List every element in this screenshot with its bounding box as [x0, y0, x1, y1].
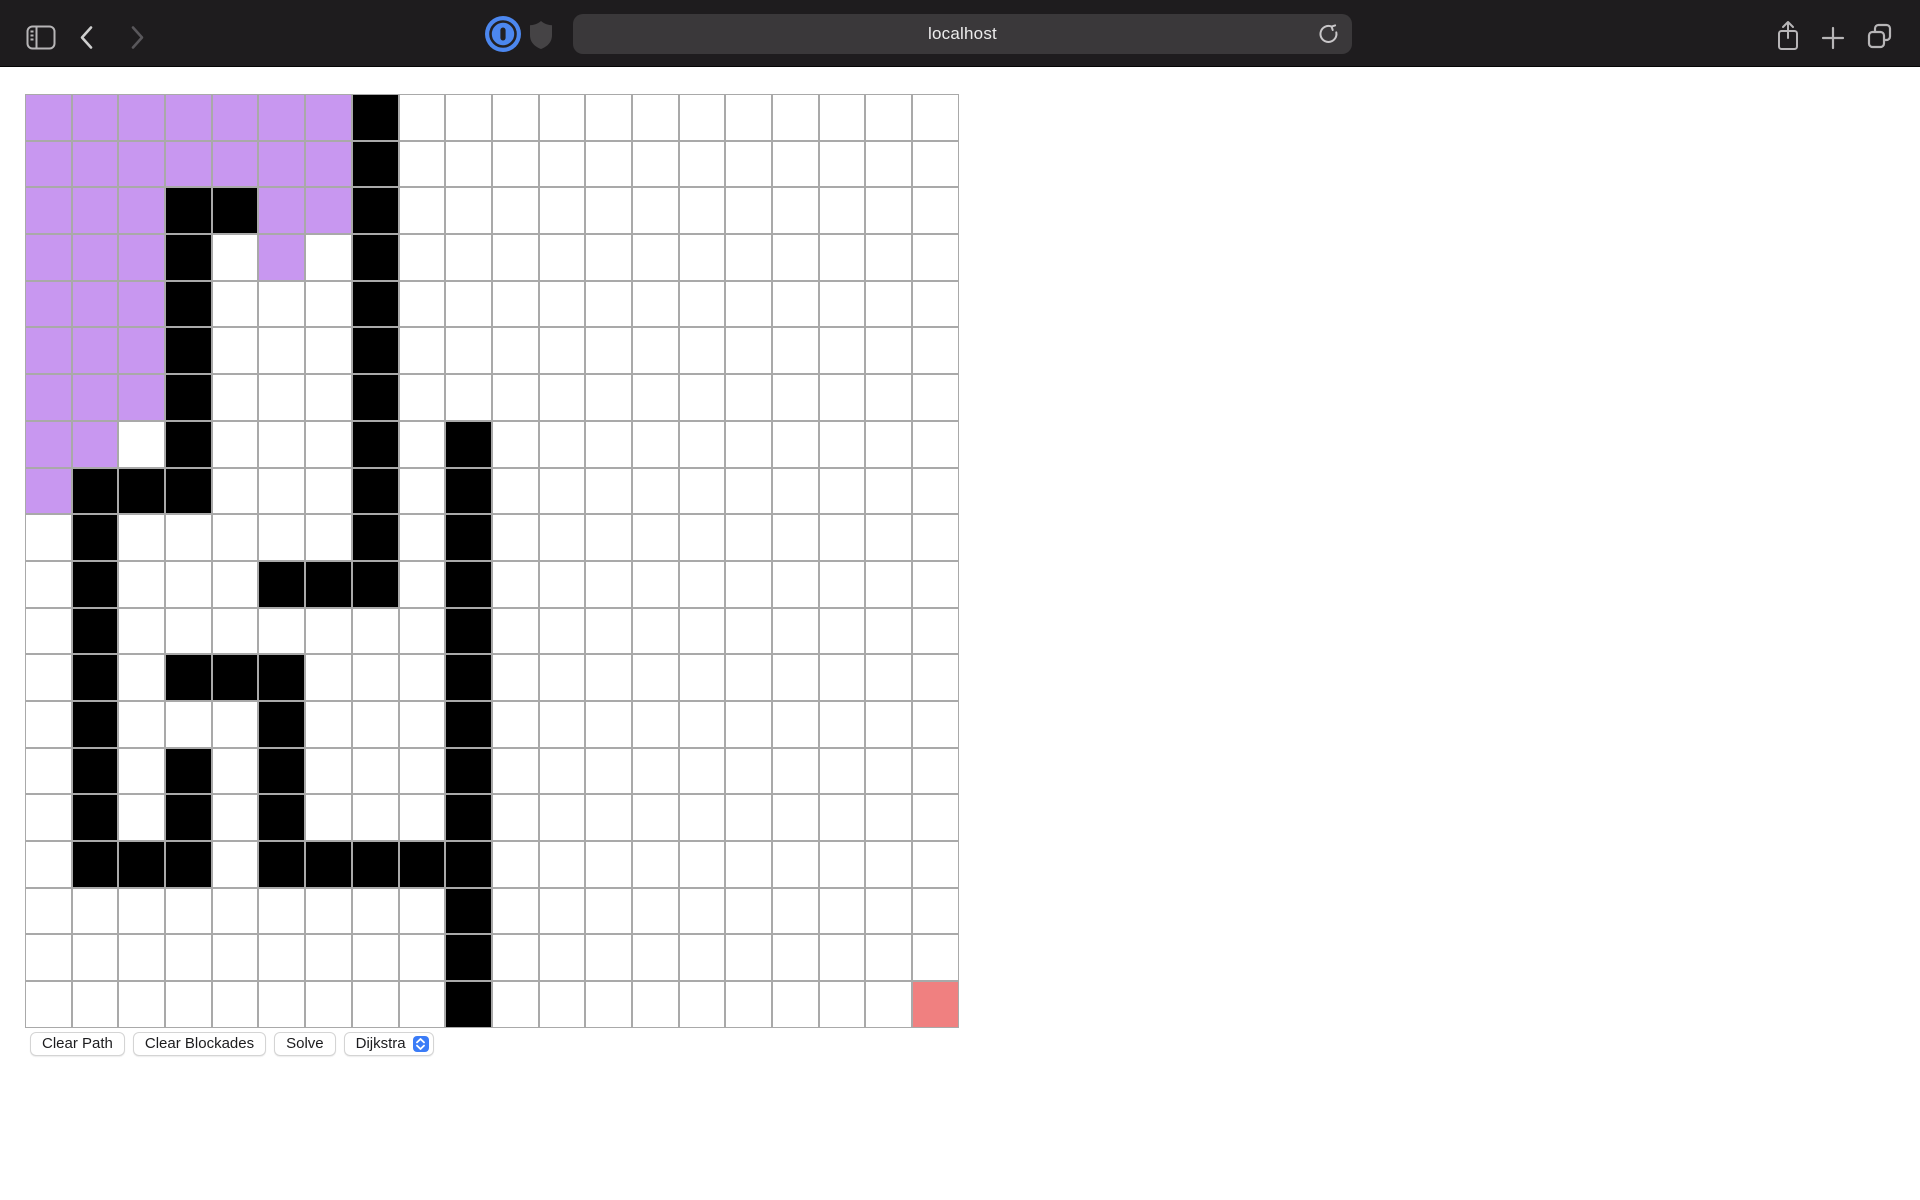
grid-cell-visited[interactable]	[258, 141, 305, 188]
grid-cell-empty[interactable]	[539, 468, 586, 515]
grid-cell-visited[interactable]	[118, 327, 165, 374]
grid-cell-empty[interactable]	[305, 468, 352, 515]
grid-cell-empty[interactable]	[258, 374, 305, 421]
grid-cell-empty[interactable]	[399, 141, 446, 188]
grid-cell-empty[interactable]	[819, 748, 866, 795]
grid-cell-empty[interactable]	[492, 234, 539, 281]
grid-cell-blockade[interactable]	[72, 841, 119, 888]
grid-cell-empty[interactable]	[399, 281, 446, 328]
grid-cell-empty[interactable]	[632, 421, 679, 468]
grid-cell-empty[interactable]	[912, 281, 959, 328]
grid-cell-visited[interactable]	[25, 374, 72, 421]
grid-cell-empty[interactable]	[399, 94, 446, 141]
grid-cell-empty[interactable]	[445, 187, 492, 234]
grid-cell-empty[interactable]	[865, 234, 912, 281]
grid-cell-empty[interactable]	[305, 654, 352, 701]
grid-cell-visited[interactable]	[25, 234, 72, 281]
grid-cell-visited[interactable]	[72, 187, 119, 234]
grid-cell-empty[interactable]	[585, 421, 632, 468]
grid-cell-empty[interactable]	[539, 514, 586, 561]
grid-cell-empty[interactable]	[865, 421, 912, 468]
grid-cell-visited[interactable]	[165, 141, 212, 188]
grid-cell-empty[interactable]	[25, 561, 72, 608]
grid-cell-empty[interactable]	[679, 281, 726, 328]
grid-cell-empty[interactable]	[352, 981, 399, 1028]
grid-cell-empty[interactable]	[445, 141, 492, 188]
grid-cell-empty[interactable]	[445, 281, 492, 328]
grid-cell-empty[interactable]	[679, 514, 726, 561]
grid-cell-empty[interactable]	[725, 794, 772, 841]
grid-cell-visited[interactable]	[72, 327, 119, 374]
grid-cell-empty[interactable]	[352, 794, 399, 841]
grid-cell-visited[interactable]	[118, 187, 165, 234]
grid-cell-empty[interactable]	[305, 794, 352, 841]
grid-cell-empty[interactable]	[352, 934, 399, 981]
grid-cell-empty[interactable]	[212, 234, 259, 281]
grid-cell-empty[interactable]	[632, 234, 679, 281]
grid-cell-empty[interactable]	[539, 234, 586, 281]
grid-cell-blockade[interactable]	[72, 748, 119, 795]
grid-cell-blockade[interactable]	[445, 934, 492, 981]
grid-cell-empty[interactable]	[632, 468, 679, 515]
clear-blockades-button[interactable]: Clear Blockades	[133, 1032, 266, 1056]
grid-cell-empty[interactable]	[772, 934, 819, 981]
grid-cell-empty[interactable]	[819, 561, 866, 608]
grid-cell-empty[interactable]	[912, 888, 959, 935]
grid-cell-empty[interactable]	[772, 608, 819, 655]
grid-cell-empty[interactable]	[912, 654, 959, 701]
grid-cell-empty[interactable]	[585, 468, 632, 515]
grid-cell-empty[interactable]	[399, 701, 446, 748]
grid-cell-empty[interactable]	[212, 841, 259, 888]
grid-cell-empty[interactable]	[305, 514, 352, 561]
grid-cell-empty[interactable]	[679, 187, 726, 234]
grid-cell-empty[interactable]	[725, 561, 772, 608]
grid-cell-empty[interactable]	[399, 561, 446, 608]
tab-overview-icon[interactable]	[1866, 23, 1898, 52]
grid-cell-empty[interactable]	[492, 654, 539, 701]
grid-cell-empty[interactable]	[305, 981, 352, 1028]
grid-cell-empty[interactable]	[492, 608, 539, 655]
grid-cell-empty[interactable]	[912, 841, 959, 888]
grid-cell-empty[interactable]	[539, 701, 586, 748]
grid-cell-empty[interactable]	[585, 327, 632, 374]
grid-cell-empty[interactable]	[772, 561, 819, 608]
grid-cell-blockade[interactable]	[445, 841, 492, 888]
grid-cell-empty[interactable]	[865, 281, 912, 328]
grid-cell-empty[interactable]	[679, 888, 726, 935]
reload-icon[interactable]	[1317, 22, 1341, 46]
grid-cell-visited[interactable]	[72, 234, 119, 281]
grid-cell-empty[interactable]	[912, 374, 959, 421]
grid-cell-target[interactable]	[912, 981, 959, 1028]
grid-cell-visited[interactable]	[25, 141, 72, 188]
grid-cell-empty[interactable]	[632, 701, 679, 748]
grid-cell-empty[interactable]	[539, 654, 586, 701]
grid-cell-empty[interactable]	[212, 748, 259, 795]
grid-cell-empty[interactable]	[585, 608, 632, 655]
grid-cell-empty[interactable]	[819, 654, 866, 701]
grid-cell-empty[interactable]	[118, 701, 165, 748]
grid-cell-blockade[interactable]	[445, 701, 492, 748]
grid-cell-empty[interactable]	[25, 514, 72, 561]
grid-cell-empty[interactable]	[865, 608, 912, 655]
grid-cell-empty[interactable]	[445, 374, 492, 421]
grid-cell-empty[interactable]	[445, 234, 492, 281]
grid-cell-empty[interactable]	[865, 468, 912, 515]
grid-cell-empty[interactable]	[772, 981, 819, 1028]
grid-cell-visited[interactable]	[165, 94, 212, 141]
grid-cell-empty[interactable]	[912, 468, 959, 515]
grid-cell-visited[interactable]	[25, 94, 72, 141]
grid-cell-empty[interactable]	[679, 561, 726, 608]
grid-cell-empty[interactable]	[399, 234, 446, 281]
grid-cell-empty[interactable]	[912, 701, 959, 748]
grid-cell-empty[interactable]	[212, 561, 259, 608]
grid-cell-blockade[interactable]	[72, 561, 119, 608]
grid-cell-blockade[interactable]	[399, 841, 446, 888]
back-button-icon[interactable]	[76, 24, 100, 51]
grid-cell-blockade[interactable]	[72, 701, 119, 748]
grid-cell-empty[interactable]	[399, 421, 446, 468]
grid-cell-empty[interactable]	[212, 514, 259, 561]
grid-cell-blockade[interactable]	[352, 234, 399, 281]
grid-cell-empty[interactable]	[118, 654, 165, 701]
grid-cell-empty[interactable]	[725, 141, 772, 188]
grid-cell-visited[interactable]	[212, 141, 259, 188]
grid-cell-blockade[interactable]	[165, 841, 212, 888]
grid-cell-empty[interactable]	[492, 187, 539, 234]
grid-cell-empty[interactable]	[679, 794, 726, 841]
grid-cell-empty[interactable]	[258, 281, 305, 328]
grid-cell-empty[interactable]	[632, 281, 679, 328]
grid-cell-empty[interactable]	[399, 748, 446, 795]
grid-cell-empty[interactable]	[118, 514, 165, 561]
grid-cell-empty[interactable]	[539, 981, 586, 1028]
grid-cell-empty[interactable]	[165, 981, 212, 1028]
grid-cell-empty[interactable]	[585, 981, 632, 1028]
grid-cell-empty[interactable]	[865, 187, 912, 234]
grid-cell-empty[interactable]	[539, 374, 586, 421]
grid-cell-visited[interactable]	[118, 374, 165, 421]
grid-cell-empty[interactable]	[865, 94, 912, 141]
grid-cell-empty[interactable]	[305, 421, 352, 468]
grid-cell-empty[interactable]	[585, 281, 632, 328]
grid-cell-empty[interactable]	[912, 934, 959, 981]
grid-cell-blockade[interactable]	[352, 514, 399, 561]
grid-cell-blockade[interactable]	[445, 608, 492, 655]
algorithm-select[interactable]: Dijkstra	[344, 1032, 434, 1056]
grid-cell-visited[interactable]	[118, 234, 165, 281]
grid-cell-empty[interactable]	[865, 748, 912, 795]
grid-cell-empty[interactable]	[819, 981, 866, 1028]
grid-cell-empty[interactable]	[585, 187, 632, 234]
grid-cell-blockade[interactable]	[352, 281, 399, 328]
grid-cell-empty[interactable]	[399, 327, 446, 374]
grid-cell-empty[interactable]	[399, 934, 446, 981]
grid-cell-empty[interactable]	[679, 374, 726, 421]
grid-cell-blockade[interactable]	[352, 561, 399, 608]
grid-cell-empty[interactable]	[725, 608, 772, 655]
grid-cell-blockade[interactable]	[352, 141, 399, 188]
grid-cell-empty[interactable]	[772, 654, 819, 701]
grid-cell-empty[interactable]	[492, 841, 539, 888]
grid-cell-empty[interactable]	[632, 561, 679, 608]
grid-cell-blockade[interactable]	[445, 748, 492, 795]
grid-cell-empty[interactable]	[585, 374, 632, 421]
grid-cell-empty[interactable]	[399, 654, 446, 701]
grid-cell-visited[interactable]	[72, 141, 119, 188]
grid-cell-empty[interactable]	[819, 234, 866, 281]
grid-cell-empty[interactable]	[25, 841, 72, 888]
grid-cell-empty[interactable]	[819, 888, 866, 935]
grid-cell-empty[interactable]	[679, 934, 726, 981]
grid-cell-empty[interactable]	[772, 281, 819, 328]
grid-cell-empty[interactable]	[819, 608, 866, 655]
grid-cell-empty[interactable]	[539, 794, 586, 841]
grid-cell-empty[interactable]	[212, 934, 259, 981]
grid-cell-empty[interactable]	[492, 281, 539, 328]
grid-cell-empty[interactable]	[492, 421, 539, 468]
grid-cell-empty[interactable]	[212, 327, 259, 374]
grid-cell-blockade[interactable]	[445, 468, 492, 515]
grid-cell-empty[interactable]	[539, 141, 586, 188]
grid-cell-empty[interactable]	[772, 888, 819, 935]
grid-cell-visited[interactable]	[118, 281, 165, 328]
grid-cell-empty[interactable]	[865, 888, 912, 935]
grid-cell-empty[interactable]	[118, 794, 165, 841]
grid-cell-empty[interactable]	[585, 934, 632, 981]
grid-cell-empty[interactable]	[399, 468, 446, 515]
grid-cell-empty[interactable]	[725, 421, 772, 468]
grid-cell-empty[interactable]	[632, 141, 679, 188]
share-icon[interactable]	[1774, 20, 1802, 52]
grid-cell-blockade[interactable]	[258, 794, 305, 841]
grid-cell-empty[interactable]	[772, 234, 819, 281]
grid-cell-empty[interactable]	[632, 934, 679, 981]
grid-cell-empty[interactable]	[819, 514, 866, 561]
grid-cell-empty[interactable]	[679, 234, 726, 281]
grid-cell-blockade[interactable]	[165, 748, 212, 795]
grid-cell-empty[interactable]	[865, 794, 912, 841]
grid-cell-empty[interactable]	[165, 608, 212, 655]
grid-cell-empty[interactable]	[212, 701, 259, 748]
grid-cell-empty[interactable]	[539, 187, 586, 234]
grid-cell-empty[interactable]	[492, 748, 539, 795]
grid-cell-empty[interactable]	[539, 281, 586, 328]
grid-cell-empty[interactable]	[492, 794, 539, 841]
grid-cell-empty[interactable]	[632, 981, 679, 1028]
grid-cell-empty[interactable]	[865, 981, 912, 1028]
grid-cell-empty[interactable]	[165, 561, 212, 608]
grid-cell-empty[interactable]	[305, 934, 352, 981]
grid-cell-blockade[interactable]	[165, 374, 212, 421]
grid-cell-empty[interactable]	[679, 701, 726, 748]
grid-cell-empty[interactable]	[492, 327, 539, 374]
grid-cell-empty[interactable]	[212, 981, 259, 1028]
grid-cell-visited[interactable]	[25, 327, 72, 374]
grid-cell-blockade[interactable]	[72, 608, 119, 655]
grid-cell-empty[interactable]	[912, 561, 959, 608]
grid-cell-empty[interactable]	[632, 794, 679, 841]
grid-cell-empty[interactable]	[865, 701, 912, 748]
grid-cell-empty[interactable]	[679, 421, 726, 468]
grid-cell-empty[interactable]	[305, 888, 352, 935]
grid-cell-empty[interactable]	[539, 608, 586, 655]
grid-cell-empty[interactable]	[118, 421, 165, 468]
grid-cell-empty[interactable]	[865, 934, 912, 981]
grid-cell-empty[interactable]	[352, 654, 399, 701]
grid-cell-blockade[interactable]	[258, 654, 305, 701]
grid-cell-blockade[interactable]	[352, 327, 399, 374]
grid-cell-blockade[interactable]	[305, 561, 352, 608]
grid-cell-empty[interactable]	[165, 701, 212, 748]
solve-button[interactable]: Solve	[274, 1032, 336, 1056]
grid-cell-empty[interactable]	[25, 934, 72, 981]
grid-cell-empty[interactable]	[25, 701, 72, 748]
grid-cell-empty[interactable]	[72, 888, 119, 935]
grid-cell-blockade[interactable]	[72, 794, 119, 841]
grid-cell-empty[interactable]	[165, 934, 212, 981]
grid-cell-visited[interactable]	[305, 94, 352, 141]
grid-cell-visited[interactable]	[72, 281, 119, 328]
grid-cell-empty[interactable]	[819, 934, 866, 981]
grid-cell-empty[interactable]	[819, 187, 866, 234]
grid-cell-empty[interactable]	[865, 654, 912, 701]
grid-cell-empty[interactable]	[819, 281, 866, 328]
grid-cell-empty[interactable]	[258, 608, 305, 655]
grid-cell-empty[interactable]	[912, 421, 959, 468]
grid-cell-empty[interactable]	[725, 374, 772, 421]
grid-cell-empty[interactable]	[585, 561, 632, 608]
grid-cell-visited[interactable]	[72, 374, 119, 421]
grid-cell-empty[interactable]	[679, 141, 726, 188]
grid-cell-empty[interactable]	[632, 654, 679, 701]
grid-cell-empty[interactable]	[585, 94, 632, 141]
grid-cell-empty[interactable]	[399, 794, 446, 841]
grid-cell-empty[interactable]	[679, 327, 726, 374]
grid-cell-blockade[interactable]	[445, 561, 492, 608]
grid-cell-empty[interactable]	[679, 608, 726, 655]
grid-cell-empty[interactable]	[819, 374, 866, 421]
grid-cell-empty[interactable]	[912, 234, 959, 281]
grid-cell-empty[interactable]	[305, 374, 352, 421]
grid-cell-empty[interactable]	[912, 327, 959, 374]
grid-cell-empty[interactable]	[819, 841, 866, 888]
grid-cell-empty[interactable]	[772, 94, 819, 141]
grid-cell-empty[interactable]	[585, 234, 632, 281]
grid-cell-empty[interactable]	[118, 748, 165, 795]
grid-cell-visited[interactable]	[118, 94, 165, 141]
grid-cell-empty[interactable]	[305, 748, 352, 795]
grid-cell-empty[interactable]	[632, 608, 679, 655]
grid-cell-empty[interactable]	[539, 888, 586, 935]
grid-cell-empty[interactable]	[772, 421, 819, 468]
grid-cell-empty[interactable]	[445, 94, 492, 141]
grid-cell-empty[interactable]	[819, 468, 866, 515]
grid-cell-empty[interactable]	[399, 981, 446, 1028]
grid-cell-empty[interactable]	[679, 981, 726, 1028]
grid-cell-empty[interactable]	[865, 141, 912, 188]
grid-cell-empty[interactable]	[725, 748, 772, 795]
grid-cell-blockade[interactable]	[72, 468, 119, 515]
grid-cell-empty[interactable]	[305, 701, 352, 748]
grid-cell-empty[interactable]	[725, 468, 772, 515]
grid-cell-empty[interactable]	[772, 327, 819, 374]
grid-cell-empty[interactable]	[258, 888, 305, 935]
grid-cell-empty[interactable]	[212, 468, 259, 515]
grid-cell-empty[interactable]	[772, 794, 819, 841]
grid-cell-empty[interactable]	[585, 794, 632, 841]
grid-cell-empty[interactable]	[632, 327, 679, 374]
grid-cell-empty[interactable]	[118, 561, 165, 608]
grid-cell-empty[interactable]	[819, 94, 866, 141]
grid-cell-empty[interactable]	[539, 327, 586, 374]
grid-cell-empty[interactable]	[539, 841, 586, 888]
grid-cell-empty[interactable]	[632, 514, 679, 561]
grid-cell-empty[interactable]	[819, 141, 866, 188]
grid-cell-empty[interactable]	[212, 374, 259, 421]
grid-cell-empty[interactable]	[772, 374, 819, 421]
grid-cell-empty[interactable]	[212, 794, 259, 841]
grid-cell-blockade[interactable]	[352, 374, 399, 421]
grid-cell-empty[interactable]	[819, 327, 866, 374]
grid-cell-blockade[interactable]	[258, 701, 305, 748]
grid-cell-empty[interactable]	[865, 327, 912, 374]
grid-cell-visited[interactable]	[305, 187, 352, 234]
grid-cell-empty[interactable]	[632, 748, 679, 795]
grid-cell-empty[interactable]	[212, 888, 259, 935]
grid-cell-empty[interactable]	[585, 748, 632, 795]
grid-cell-empty[interactable]	[725, 187, 772, 234]
grid-cell-empty[interactable]	[25, 654, 72, 701]
grid-cell-empty[interactable]	[165, 514, 212, 561]
grid-cell-blockade[interactable]	[258, 841, 305, 888]
grid-cell-blockade[interactable]	[165, 187, 212, 234]
grid-cell-visited[interactable]	[258, 187, 305, 234]
grid-cell-empty[interactable]	[679, 654, 726, 701]
grid-cell-empty[interactable]	[632, 888, 679, 935]
grid-cell-blockade[interactable]	[165, 281, 212, 328]
new-tab-plus-icon[interactable]	[1820, 25, 1846, 51]
grid-cell-blockade[interactable]	[352, 94, 399, 141]
grid-cell-visited[interactable]	[305, 141, 352, 188]
grid-cell-visited[interactable]	[25, 468, 72, 515]
grid-cell-empty[interactable]	[258, 934, 305, 981]
grid-cell-blockade[interactable]	[352, 187, 399, 234]
grid-cell-empty[interactable]	[865, 514, 912, 561]
grid-cell-empty[interactable]	[25, 981, 72, 1028]
grid-cell-empty[interactable]	[772, 141, 819, 188]
grid-cell-empty[interactable]	[725, 701, 772, 748]
grid-cell-empty[interactable]	[585, 514, 632, 561]
grid-cell-blockade[interactable]	[305, 841, 352, 888]
grid-cell-empty[interactable]	[539, 94, 586, 141]
grid-cell-empty[interactable]	[25, 748, 72, 795]
password-extension-icon[interactable]	[483, 14, 523, 54]
grid-cell-blockade[interactable]	[165, 421, 212, 468]
grid-cell-empty[interactable]	[679, 748, 726, 795]
grid-cell-empty[interactable]	[819, 794, 866, 841]
grid-cell-empty[interactable]	[352, 748, 399, 795]
grid-cell-empty[interactable]	[912, 748, 959, 795]
grid-cell-empty[interactable]	[912, 141, 959, 188]
grid-cell-empty[interactable]	[679, 468, 726, 515]
grid-cell-blockade[interactable]	[165, 327, 212, 374]
grid-cell-empty[interactable]	[679, 94, 726, 141]
grid-cell-blockade[interactable]	[352, 468, 399, 515]
grid-cell-blockade[interactable]	[72, 514, 119, 561]
